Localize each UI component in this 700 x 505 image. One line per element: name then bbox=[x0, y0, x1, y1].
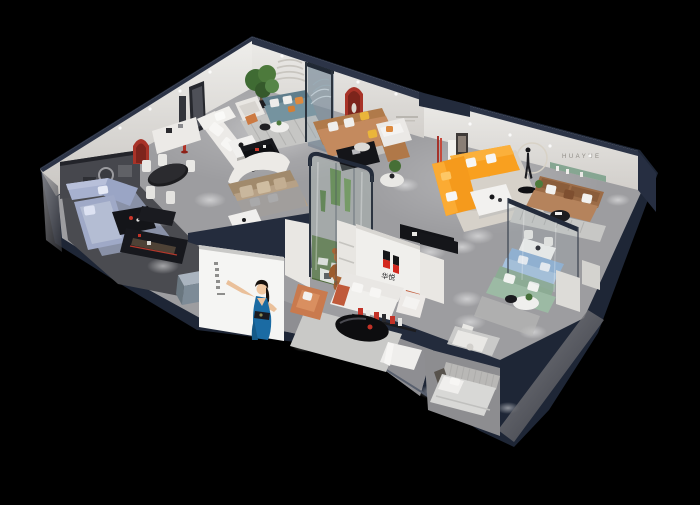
svg-text:HUAYUE: HUAYUE bbox=[562, 154, 602, 160]
